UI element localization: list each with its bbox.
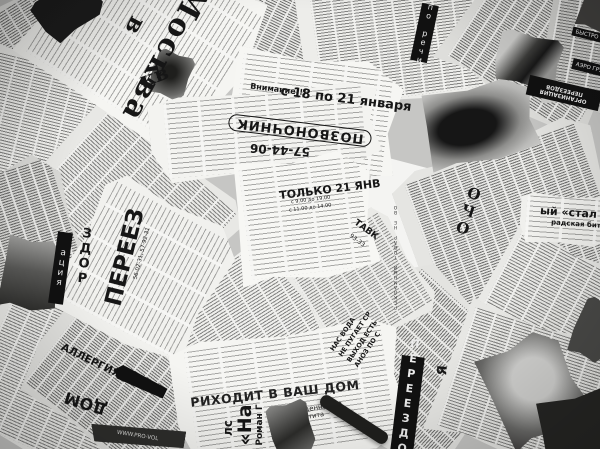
headline-ls-vertical: лс [222, 411, 236, 445]
ad-disclaimer-vertical: РЕКЛАМНЫЙ ТОВАР НЕ ВО [394, 247, 404, 309]
only-day-ad-scrap [228, 147, 382, 288]
headline-nash-vertical: «На [236, 400, 258, 449]
newspaper-collage: по речи Москва в кв Внимание!!! с 18 по … [0, 0, 600, 449]
ya-letter: Я [436, 365, 450, 376]
